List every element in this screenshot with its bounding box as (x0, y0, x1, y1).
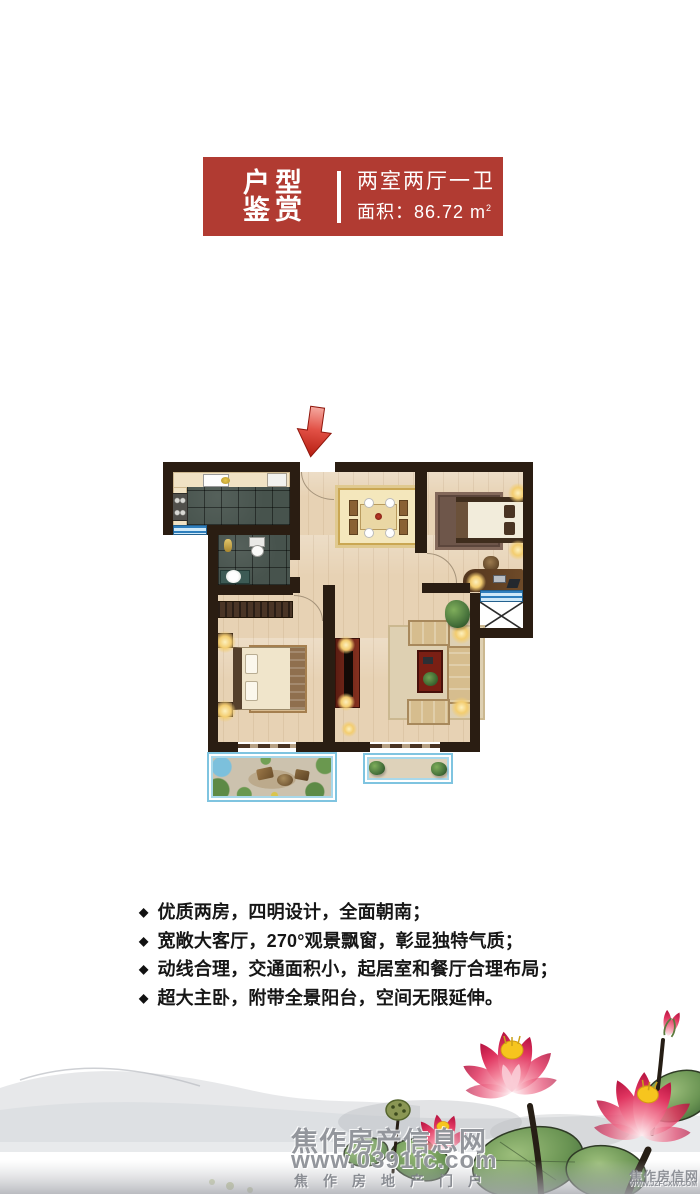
balcony-plant (369, 761, 385, 775)
dining-plate (385, 528, 395, 538)
living-balcony (363, 753, 453, 784)
feature-text: 宽敞大客厅，270°观景飘窗，彰显独特气质； (157, 931, 523, 951)
balcony-plant (431, 762, 447, 776)
banner-divider (337, 171, 341, 223)
bedroom2-blanket (456, 502, 468, 538)
diamond-bullet-icon: ◆ (139, 905, 148, 919)
banner-title-line2: 鉴赏 (229, 197, 321, 224)
entrance-arrow-icon (291, 405, 337, 461)
feature-list: ◆优质两房，四明设计，全面朝南； ◆宽敞大客厅，270°观景飘窗，彰显独特气质；… (139, 899, 558, 1013)
cabinet-candle-glow (337, 636, 355, 654)
banner-title-line1: 户型 (229, 170, 321, 197)
dining-chair (349, 519, 358, 535)
living-lamp-glow (451, 697, 472, 718)
laptop-icon (493, 575, 506, 583)
diamond-bullet-icon: ◆ (139, 962, 148, 976)
bedroom2-south-window (480, 590, 523, 602)
area-superscript: 2 (486, 203, 492, 213)
bedroom2-bed (456, 497, 532, 543)
kitchen-floor-tiles (187, 487, 290, 525)
kitchen-fridge (267, 473, 287, 487)
table-flowers (423, 672, 438, 686)
living-plant (445, 600, 470, 628)
wall-outer-right (523, 462, 533, 638)
feature-text: 优质两房，四明设计，全面朝南； (157, 902, 430, 922)
dining-chair (349, 500, 358, 516)
kitchen-spice-items (221, 477, 230, 484)
wall-dining-bedroom2 (415, 462, 427, 553)
wall-west-lower (208, 535, 218, 752)
promo-page: 户型 鉴赏 两室两厅一卫 面积：86.72 m2 (0, 0, 700, 1194)
master-pillow (245, 681, 258, 701)
wall-master-bottom-left (208, 742, 238, 752)
wall-outer-left (163, 462, 173, 535)
master-bed (233, 647, 305, 710)
wall-living-bottom-left (335, 742, 370, 752)
balcony-rock (294, 769, 310, 781)
bathroom-shower-fixture (224, 539, 232, 552)
tv-screen (344, 651, 353, 697)
feature-item: ◆宽敞大客厅，270°观景飘窗，彰显独特气质； (139, 928, 558, 957)
wall-top-left (163, 462, 298, 472)
wall-bedroom2-bottom (422, 583, 470, 593)
wall-living-bottom-right (440, 742, 480, 752)
dining-chair (399, 519, 408, 535)
banner-info: 两室两厅一卫 面积：86.72 m2 (357, 170, 495, 223)
balcony-rock (277, 774, 293, 786)
master-balcony-sliding-door (238, 744, 296, 748)
wall-master-bottom-right (296, 742, 335, 752)
kitchen-stove (172, 493, 188, 521)
floor-plan (163, 405, 540, 805)
dining-centerpiece (375, 513, 382, 520)
desk-tablet (507, 579, 521, 588)
wall-living-right (470, 638, 480, 752)
corner-watermark-url: WWW.JZFCXW.COM (629, 1181, 697, 1188)
elevator-shaft (480, 602, 523, 630)
kitchen-window (173, 525, 207, 535)
banner-title: 户型 鉴赏 (229, 170, 321, 224)
master-wardrobe (217, 601, 293, 618)
watermark-tagline: 焦作房地产门户 (294, 1171, 497, 1191)
master-pillow (245, 654, 258, 674)
feature-text: 动线合理，交通面积小，起居室和餐厅合理布局； (157, 959, 557, 979)
cabinet-candle-glow (337, 693, 355, 711)
wall-master-top (208, 585, 293, 595)
master-blanket (290, 648, 305, 709)
sofa-loveseat-top (408, 620, 450, 646)
layout-type-label: 两室两厅一卫 (357, 170, 495, 194)
coffee-table (417, 650, 443, 693)
header-banner: 户型 鉴赏 两室两厅一卫 面积：86.72 m2 (203, 157, 503, 236)
table-laptop (423, 657, 433, 664)
diamond-bullet-icon: ◆ (139, 991, 148, 1005)
sofa-loveseat-bottom (407, 699, 450, 725)
wall-top-right (335, 462, 533, 472)
living-balcony-sliding-door (370, 744, 440, 748)
bedroom2-pillow (504, 522, 515, 535)
wall-shaft-bottom (470, 628, 533, 638)
master-balcony (207, 752, 337, 802)
bedroom2-pillow (504, 505, 515, 518)
feature-text: 超大主卧，附带全景阳台，空间无限延伸。 (157, 988, 503, 1008)
dining-plate (364, 498, 374, 508)
wall-kitchen-bath-divider (207, 525, 300, 535)
feature-item: ◆动线合理，交通面积小，起居室和餐厅合理布局； (139, 956, 558, 985)
balcony-rock (256, 766, 274, 780)
shaft-x-icon (480, 602, 523, 630)
wall-bath-right-upper (290, 535, 300, 560)
dining-chair (399, 500, 408, 516)
bathroom-toilet-bowl (251, 545, 264, 557)
hall-light-glow (341, 721, 357, 737)
feature-item: ◆优质两房，四明设计，全面朝南； (139, 899, 558, 928)
diamond-bullet-icon: ◆ (139, 934, 148, 948)
dining-plate (385, 498, 395, 508)
bathroom-basin (226, 570, 241, 583)
area-value: 面积：86.72 m (357, 202, 486, 222)
wall-central (323, 585, 335, 752)
area-label: 面积：86.72 m2 (357, 197, 495, 223)
dining-plate (364, 528, 374, 538)
